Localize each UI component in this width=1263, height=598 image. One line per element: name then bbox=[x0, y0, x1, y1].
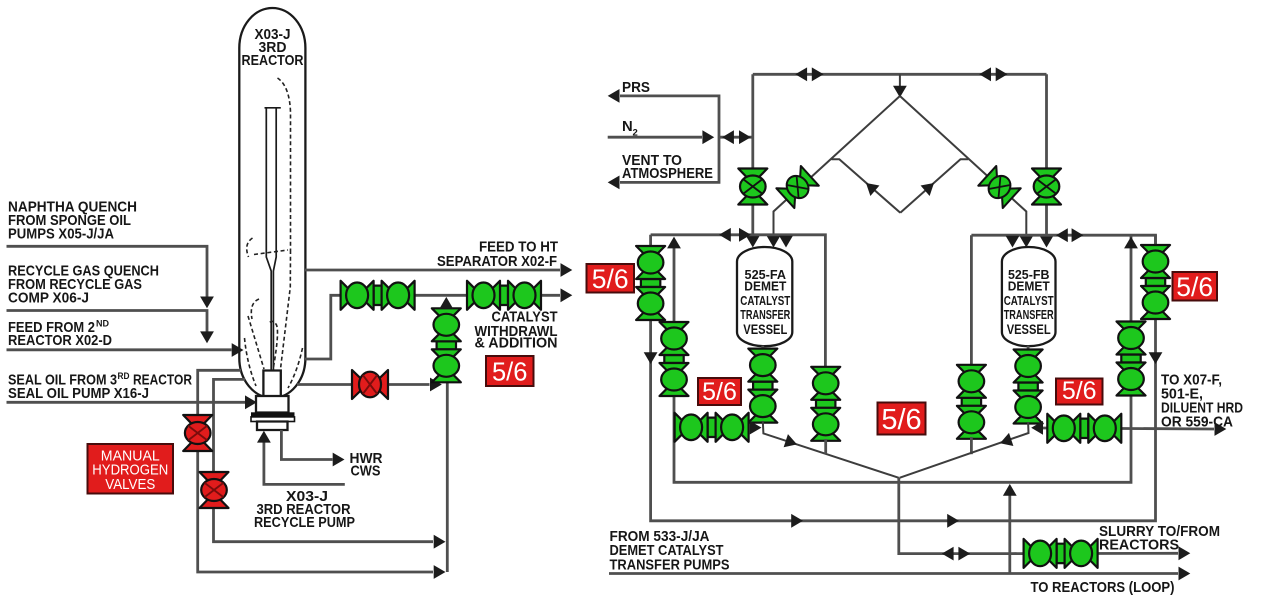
svg-text:RECYCLE PUMP: RECYCLE PUMP bbox=[254, 515, 355, 531]
svg-text:N: N bbox=[622, 119, 633, 135]
svg-text:CATALYST: CATALYST bbox=[740, 293, 790, 308]
svg-text:5/6: 5/6 bbox=[881, 404, 921, 436]
svg-text:REACTORS: REACTORS bbox=[1099, 538, 1179, 554]
svg-text:5/6: 5/6 bbox=[1176, 272, 1213, 302]
svg-text:CATALYST: CATALYST bbox=[1004, 293, 1054, 308]
svg-text:COMP X06-J: COMP X06-J bbox=[8, 291, 89, 307]
svg-text:TRANSFER: TRANSFER bbox=[740, 307, 790, 322]
svg-text:ND: ND bbox=[96, 318, 109, 328]
svg-text:CWS: CWS bbox=[351, 463, 381, 479]
svg-text:DEMET: DEMET bbox=[1008, 279, 1050, 294]
svg-text:5/6: 5/6 bbox=[702, 378, 737, 406]
svg-text:TO REACTORS (LOOP): TO REACTORS (LOOP) bbox=[1031, 580, 1175, 596]
svg-text:PUMPS X05-J/JA: PUMPS X05-J/JA bbox=[8, 227, 114, 243]
svg-text:TRANSFER PUMPS: TRANSFER PUMPS bbox=[610, 557, 730, 573]
svg-text:5/6: 5/6 bbox=[592, 264, 629, 294]
svg-text:TRANSFER: TRANSFER bbox=[1004, 307, 1054, 322]
svg-text:SEPARATOR X02-F: SEPARATOR X02-F bbox=[437, 254, 557, 270]
svg-text:VALVES: VALVES bbox=[105, 477, 155, 493]
svg-text:SEAL OIL PUMP X16-J: SEAL OIL PUMP X16-J bbox=[8, 386, 149, 402]
svg-text:VESSEL: VESSEL bbox=[1007, 322, 1051, 337]
svg-text:ATMOSPHERE: ATMOSPHERE bbox=[622, 166, 713, 182]
svg-text:VESSEL: VESSEL bbox=[743, 322, 787, 337]
svg-text:5/6: 5/6 bbox=[1062, 377, 1097, 405]
svg-text:OR 559-CA: OR 559-CA bbox=[1161, 415, 1233, 431]
svg-text:5/6: 5/6 bbox=[492, 359, 527, 387]
svg-text:REACTOR: REACTOR bbox=[242, 52, 304, 69]
svg-text:RD: RD bbox=[118, 371, 130, 381]
svg-text:& ADDITION: & ADDITION bbox=[475, 336, 558, 352]
svg-text:PRS: PRS bbox=[622, 80, 650, 96]
svg-text:DEMET: DEMET bbox=[744, 279, 786, 294]
svg-text:REACTOR X02-D: REACTOR X02-D bbox=[8, 333, 112, 349]
